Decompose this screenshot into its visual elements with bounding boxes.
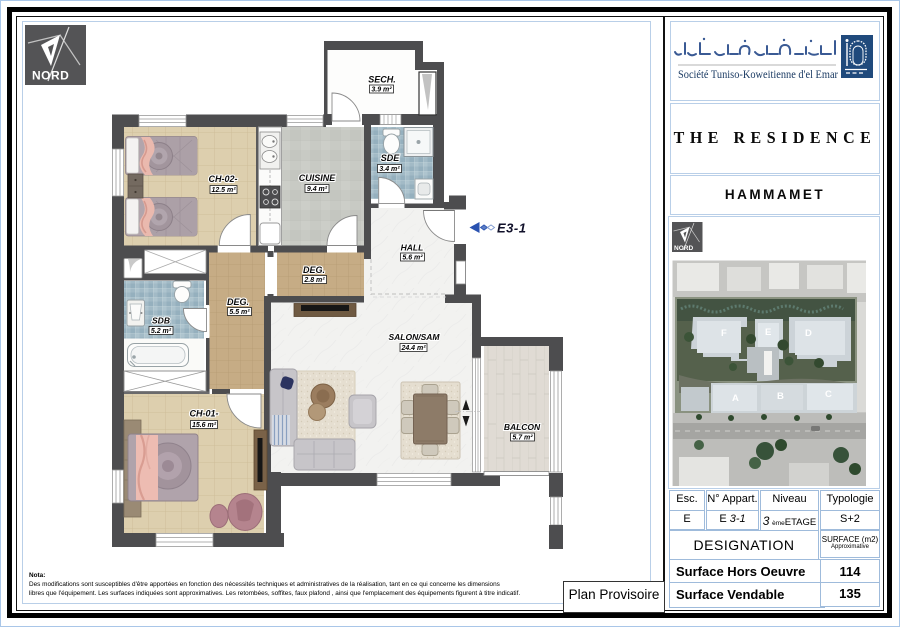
svg-text:12.5 m²: 12.5 m² — [211, 187, 236, 194]
svg-text:24.4 m²: 24.4 m² — [400, 345, 426, 352]
svg-text:5.2 m²: 5.2 m² — [151, 328, 172, 335]
svg-text:5.5 m²: 5.5 m² — [229, 309, 250, 316]
svg-text:HALL: HALL — [401, 243, 424, 253]
svg-text:D: D — [805, 328, 812, 339]
svg-text:BALCON: BALCON — [504, 422, 541, 432]
svg-text:NORD: NORD — [32, 69, 69, 83]
svg-text:DEG.: DEG. — [227, 297, 249, 307]
svg-text:SDB: SDB — [152, 316, 170, 326]
svg-text:E3-1: E3-1 — [497, 221, 526, 236]
svg-text:B: B — [777, 391, 784, 402]
svg-text:2.8 m²: 2.8 m² — [303, 277, 325, 284]
svg-text:A: A — [732, 393, 739, 404]
svg-text:5.6 m²: 5.6 m² — [402, 255, 423, 262]
svg-text:CH-01-: CH-01- — [189, 409, 218, 419]
svg-text:F: F — [721, 328, 727, 339]
svg-text:3.4 m²: 3.4 m² — [379, 166, 400, 173]
svg-text:SECH.: SECH. — [368, 75, 396, 85]
svg-text:5.7 m²: 5.7 m² — [512, 435, 533, 442]
svg-text:E: E — [765, 327, 771, 338]
svg-text:DEG.: DEG. — [303, 265, 325, 275]
svg-text:SDE: SDE — [381, 153, 401, 163]
svg-text:C: C — [825, 389, 832, 400]
svg-text:9.4 m²: 9.4 m² — [307, 186, 328, 193]
svg-text:15.6 m²: 15.6 m² — [192, 422, 217, 429]
svg-text:CH-02-: CH-02- — [208, 174, 237, 184]
svg-text:CUISINE: CUISINE — [299, 173, 337, 183]
svg-text:3.9 m²: 3.9 m² — [371, 87, 392, 94]
svg-text:NORD: NORD — [674, 245, 693, 252]
svg-text:Société Tuniso-Koweitienne d'e: Société Tuniso-Koweitienne d'el Emar — [678, 69, 838, 81]
svg-text:SALON/SAM: SALON/SAM — [389, 332, 441, 342]
